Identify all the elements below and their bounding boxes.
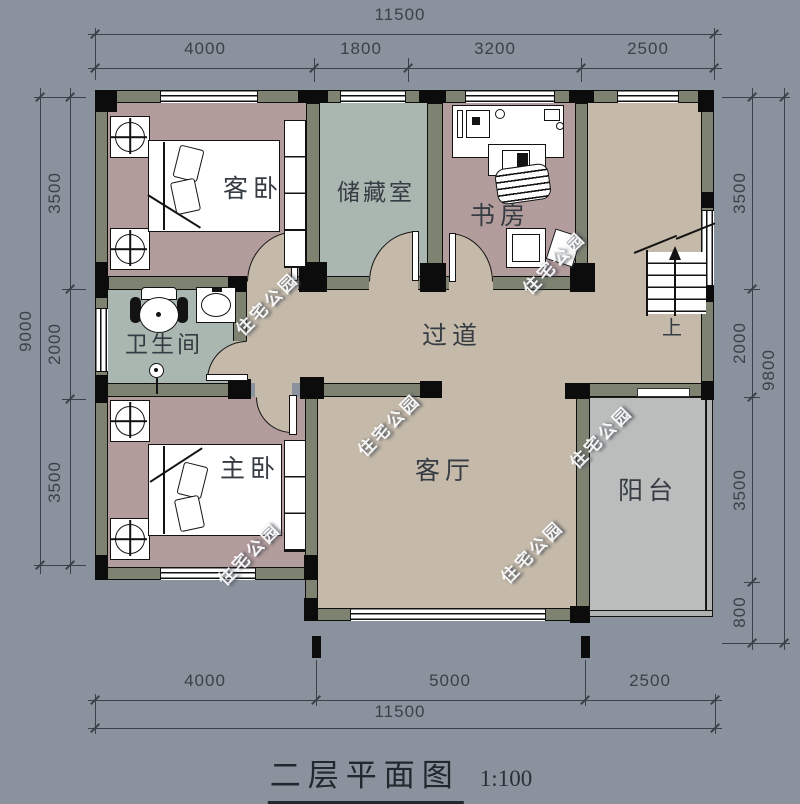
dim-label: 1800 bbox=[340, 39, 382, 59]
dim-label-top-total: 11500 bbox=[374, 5, 425, 25]
lamp-icon bbox=[115, 406, 145, 436]
dim-label: 3500 bbox=[730, 469, 750, 511]
stair-arrow-head-icon bbox=[669, 246, 681, 260]
column bbox=[95, 90, 117, 112]
window bbox=[160, 90, 258, 103]
drawing-title: 二层平面图 1:100 bbox=[268, 750, 532, 804]
column bbox=[565, 383, 590, 399]
column bbox=[701, 381, 714, 400]
extension-line bbox=[34, 565, 86, 566]
dimension-line bbox=[40, 88, 41, 574]
floor-drain-dot bbox=[154, 368, 158, 372]
column bbox=[298, 90, 328, 103]
column bbox=[304, 555, 318, 580]
extension-line bbox=[62, 289, 86, 290]
room-label-study: 书房 bbox=[470, 196, 530, 232]
lamp-icon bbox=[115, 524, 145, 554]
sink-basin bbox=[201, 293, 231, 317]
window bbox=[465, 90, 555, 103]
wardrobe-guest bbox=[284, 120, 306, 268]
dim-label-bottom-total: 11500 bbox=[374, 702, 425, 722]
wall-stub bbox=[581, 636, 590, 658]
window bbox=[340, 90, 406, 103]
lamp-icon bbox=[115, 122, 145, 152]
extension-line bbox=[62, 399, 86, 400]
column bbox=[95, 555, 108, 580]
room-label-balcony: 阳台 bbox=[618, 471, 678, 507]
dim-label: 4000 bbox=[184, 39, 226, 59]
dim-label: 3500 bbox=[45, 461, 65, 503]
wall-master-right bbox=[305, 397, 318, 621]
stair-treads bbox=[648, 252, 706, 314]
room-label-bathroom: 卫生间 bbox=[125, 325, 203, 359]
stair-edge bbox=[646, 250, 648, 316]
lamp-icon bbox=[115, 234, 145, 264]
dim-label: 4000 bbox=[184, 671, 226, 691]
column bbox=[304, 598, 318, 621]
dim-label: 3500 bbox=[45, 172, 65, 214]
desk-lamp-icon bbox=[495, 109, 505, 119]
extension-line bbox=[722, 97, 790, 98]
door-leaf-study bbox=[449, 233, 456, 282]
extension-line bbox=[408, 58, 409, 82]
dim-label: 3500 bbox=[730, 172, 750, 214]
living-room-floor bbox=[318, 397, 576, 610]
extension-line bbox=[314, 58, 315, 82]
column bbox=[228, 379, 251, 399]
extension-line bbox=[722, 643, 790, 644]
dim-label: 2500 bbox=[629, 671, 671, 691]
column bbox=[420, 381, 442, 398]
dimension-line bbox=[70, 88, 71, 574]
room-label-storage: 储藏室 bbox=[337, 173, 415, 207]
floor-plan: 上 客卧 储藏室 书房 卫生间 过道 主卧 客厅 阳台 住宅公园 住宅公园 住宅… bbox=[0, 0, 800, 804]
column bbox=[95, 262, 108, 298]
desk-object-small bbox=[556, 122, 564, 130]
dim-label: 2000 bbox=[45, 323, 65, 365]
dim-label: 2000 bbox=[730, 322, 750, 364]
room-label-living-room: 客厅 bbox=[415, 451, 475, 487]
dim-label: 800 bbox=[730, 596, 750, 627]
bed-headboard bbox=[163, 446, 165, 534]
column bbox=[701, 192, 714, 208]
desk-object bbox=[544, 109, 560, 121]
column bbox=[95, 375, 108, 403]
bed-headboard bbox=[163, 142, 165, 230]
dim-label: 5000 bbox=[429, 671, 471, 691]
room-label-hallway: 过道 bbox=[422, 316, 482, 352]
window bbox=[95, 308, 108, 372]
column bbox=[419, 90, 446, 103]
wall-storage-study bbox=[427, 103, 443, 276]
room-label-master-bedroom: 主卧 bbox=[220, 449, 280, 485]
door-leaf-master bbox=[289, 395, 297, 435]
window bbox=[617, 90, 679, 103]
dim-label: 3200 bbox=[474, 39, 516, 59]
wall-hall-bottom-left bbox=[95, 383, 245, 397]
balcony-threshold bbox=[637, 388, 690, 397]
column bbox=[569, 90, 594, 103]
floor-drain-stem bbox=[156, 378, 158, 394]
extension-line bbox=[714, 28, 715, 80]
door-leaf-bathroom bbox=[206, 374, 248, 381]
column bbox=[698, 90, 714, 112]
extension-line bbox=[581, 58, 582, 82]
balcony-rail-right bbox=[706, 397, 713, 616]
wardrobe-master bbox=[284, 440, 306, 552]
stair-up-label: 上 bbox=[662, 312, 682, 341]
wall-stub bbox=[312, 636, 321, 658]
window bbox=[350, 608, 546, 621]
room-label-guest-bedroom: 客卧 bbox=[223, 169, 283, 205]
seat-square-inner bbox=[512, 234, 540, 262]
computer-detail bbox=[472, 117, 480, 125]
dimension-line bbox=[88, 34, 722, 35]
column bbox=[420, 263, 446, 292]
extension-line bbox=[34, 97, 86, 98]
sink-tap bbox=[212, 287, 222, 292]
dimension-line bbox=[752, 88, 753, 650]
dim-label-left-total: 9000 bbox=[16, 310, 36, 352]
toilet-side bbox=[177, 297, 188, 323]
dim-label: 2500 bbox=[627, 39, 669, 59]
title-scale: 1:100 bbox=[480, 766, 532, 792]
door-gap-master bbox=[255, 383, 292, 397]
dimension-line bbox=[88, 728, 722, 729]
balcony-rail-bottom bbox=[588, 610, 713, 617]
stair-arrow-line bbox=[674, 260, 676, 316]
dim-label-right-total: 9800 bbox=[759, 349, 779, 391]
dimension-line bbox=[784, 88, 785, 650]
hall-living-opening-floor bbox=[440, 383, 567, 397]
title-text: 二层平面图 bbox=[268, 750, 464, 804]
column bbox=[570, 606, 590, 623]
door-leaf-storage bbox=[412, 231, 419, 281]
toilet-drain-dot bbox=[156, 312, 161, 317]
column bbox=[570, 263, 595, 292]
extension-line bbox=[95, 28, 96, 80]
column bbox=[300, 377, 324, 399]
wall-guest-storage bbox=[306, 103, 320, 276]
computer-monitor-icon bbox=[457, 110, 463, 138]
